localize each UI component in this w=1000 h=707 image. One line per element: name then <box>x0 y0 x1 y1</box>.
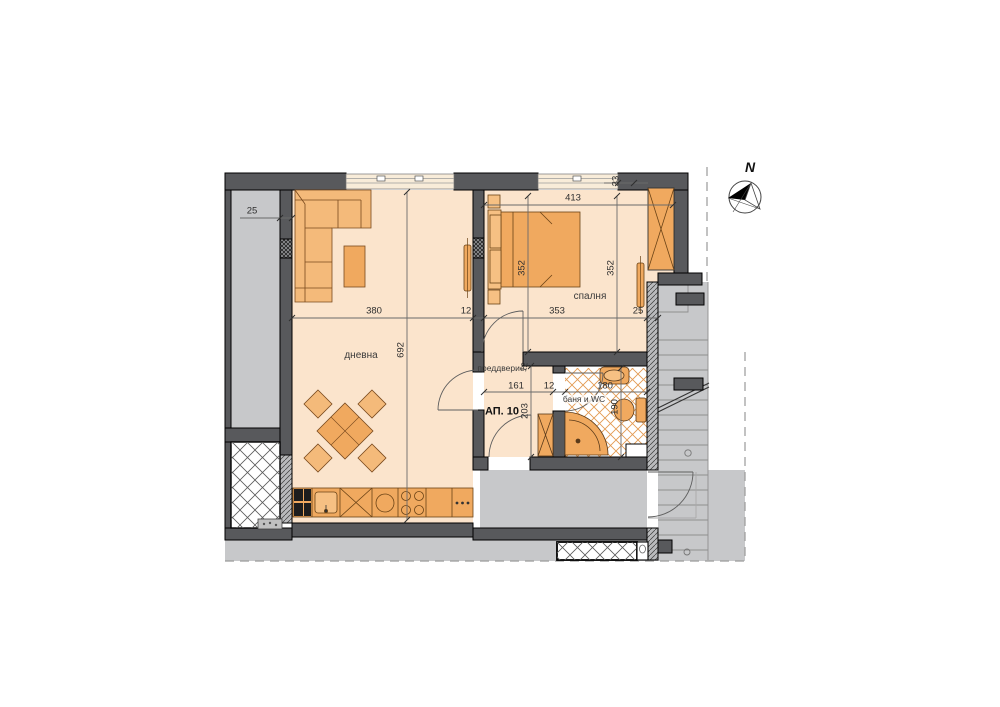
dim-vestibule-width: 161 <box>508 381 524 391</box>
floor-plan-graphic <box>0 0 1000 707</box>
dim-bedroom-width: 353 <box>549 306 565 316</box>
room-label-living: дневна <box>344 351 377 361</box>
dim-bedroom-depth: 352 <box>606 260 616 276</box>
dim-wall-left: 25 <box>247 206 258 216</box>
north-label: N <box>745 160 755 174</box>
coffee-table <box>344 246 365 287</box>
kitchen-counter <box>293 488 473 517</box>
apartment-number-label: АП. 10 <box>485 407 519 418</box>
hall-cabinet <box>538 414 553 456</box>
dim-bath-wall: 12 <box>544 381 555 391</box>
north-compass-icon <box>728 181 761 213</box>
dim-partition: 12 <box>461 306 472 316</box>
room-label-bedroom: спалня <box>574 292 607 302</box>
dim-wall-right: 25 <box>633 306 644 316</box>
dim-bathroom-depth: 190 <box>610 399 620 415</box>
dim-corner-offset: 33 <box>611 176 621 187</box>
dim-living-width: 380 <box>366 306 382 316</box>
dim-bedroom-top-width: 413 <box>565 193 581 203</box>
floor-plan-page: N АП. 10 дневна спалня преддверие баня и… <box>0 0 1000 707</box>
room-label-bathroom: баня и WC <box>561 395 607 404</box>
nightstand <box>488 290 500 304</box>
sink-icon <box>315 492 337 513</box>
dim-vestibule-depth: 203 <box>520 403 530 419</box>
nightstand <box>488 195 500 208</box>
bed <box>488 210 580 289</box>
wardrobe <box>648 188 674 270</box>
dim-partition-thickness: 12 <box>519 362 529 373</box>
dim-living-depth: 692 <box>396 342 406 358</box>
counter-continues-dots <box>456 502 470 505</box>
radiator-living <box>464 238 471 298</box>
bedroom-window <box>538 174 618 189</box>
dim-bathroom-width: 180 <box>597 381 613 391</box>
living-room-window <box>346 174 454 189</box>
dim-bed-depth: 352 <box>517 260 527 276</box>
